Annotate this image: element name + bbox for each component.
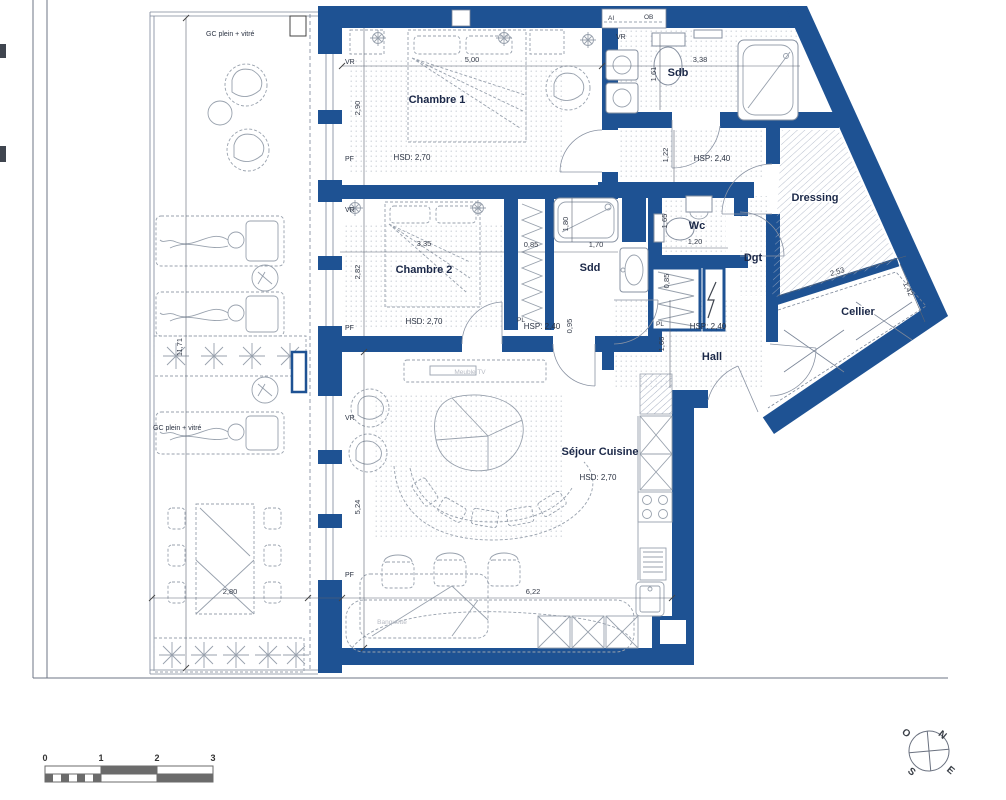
window-label-pf: PF [345,156,354,163]
floor-plan: GC plein + vitré GC plein + vitré [0,0,1006,800]
outdoor-dining-set [168,504,281,614]
dim-ch2-depth: 2,82 [353,265,362,280]
closet-label-pl2: PL [656,321,664,328]
room-label-dressing: Dressing [791,192,838,204]
ceiling-sejour: HSD: 2,70 [580,473,617,482]
floor-plan-page: GC plein + vitré GC plein + vitré [0,0,1006,800]
wall-north [318,6,806,28]
shaft-label-ai: AI [608,15,614,22]
dining-chairs [382,553,520,588]
window-chambre1 [318,54,342,180]
room-label-chambre1: Chambre 1 [409,94,466,106]
closet-pl1 [522,204,542,324]
guardrail-note: GC plein + vitré [206,31,255,38]
dim-pl1-width: 0,85 [524,240,539,249]
dim-hall-width: 1,66 [657,337,666,352]
dim-corridor-width: 1,22 [661,148,670,163]
ceiling-chambre2: HSD: 2,70 [406,317,443,326]
side-table [252,377,278,403]
balcony-column [290,16,306,36]
side-table [252,265,278,291]
dim-sdd-door: 0,95 [565,319,574,334]
electrical-panel [704,268,724,330]
sun-lounger [156,292,284,336]
ceiling-sdd-zone: HSP: 2,40 [524,322,561,331]
hand-basin [686,196,712,212]
window-label-pf: PF [345,325,354,332]
room-label-hall: Hall [702,351,722,363]
balcony-chairs [208,64,269,171]
floor-textures [340,30,800,540]
bathtub [738,40,798,120]
window-chambre2 [318,202,342,326]
shaft-label-ob: OB [644,14,653,21]
dim-ch1-depth: 2,90 [353,101,362,116]
window-label-vr: VR [345,59,355,66]
dim-sdb-depth: 1,61 [649,67,658,82]
closet-label-pl1: PL [517,317,525,324]
tall-unit [640,416,672,454]
base-unit [538,616,570,648]
sun-lounger [156,216,284,266]
wall-ch2-pl [504,199,518,330]
planter [154,638,309,672]
facade-marker [0,146,6,162]
balcony-pillar [292,352,306,392]
room-label-wc: Wc [689,220,706,232]
wall-hall-south [672,390,708,408]
nightstand [350,30,384,54]
dining-table [360,574,488,638]
washbasin [606,50,638,80]
dishwasher [640,548,666,580]
window-label-vr: VR [616,34,626,41]
dim-wc-depth: 1,65 [660,214,669,229]
scale-tick-2: 2 [154,753,159,763]
wall-sejour-north [318,336,462,352]
window-label-vr: VR [345,207,355,214]
ceiling-light-icon [580,32,596,48]
nightstand [530,30,564,54]
wall-sejour-north [502,336,553,352]
dim-balcony-width: 2,80 [223,587,238,596]
ceiling-light-icon [496,30,512,46]
wall-wc-east [734,196,748,216]
dim-shower-width: 1,70 [589,240,604,249]
scale-tick-3: 3 [210,753,215,763]
washbasin [620,248,648,292]
compass-west: O [899,727,912,741]
door-chambre1 [560,130,602,172]
banquette-label: Banquette [377,619,407,626]
dim-sejour-width: 6,22 [526,587,541,596]
dim-shower-depth: 1,80 [561,217,570,232]
wall-corridor-south [598,182,754,198]
tall-unit [640,454,672,490]
base-unit [572,616,604,648]
wall-sdb-south [602,112,672,128]
wall-southeast-angled [763,299,948,434]
wall-wc-south [648,255,748,268]
compass-east: E [944,764,956,777]
wall-south [318,648,694,665]
banquette: Banquette [346,600,634,652]
scale-bar: 0 1 2 3 [42,753,215,782]
facade-marker [0,44,6,58]
dim-sdb-width: 3,38 [693,55,708,64]
window-label-vr: VR [345,415,355,422]
door-sdd [553,344,595,386]
tv-cabinet: Meuble TV [404,360,546,382]
ceiling-hall: HSP: 2,40 [690,322,727,331]
wall-ch1-ch2 [318,185,614,199]
dim-sejour-depth: 5,24 [353,500,362,515]
compass-north: N [936,729,949,742]
room-label-dgt: Dgt [744,252,763,264]
dim-ch1-width: 5,00 [465,55,480,64]
room-label-sejour: Séjour Cuisine [561,446,638,458]
room-label-sdd: Sdd [580,262,601,274]
wall-dressing-west [766,128,780,164]
dim-ch2-width: 3,35 [417,239,432,248]
dim-balcony-length: 11,71 [175,338,184,356]
worktop [640,374,672,414]
tv-cabinet-label: Meuble TV [454,369,486,376]
sun-lounger [156,412,284,454]
room-label-cellier: Cellier [841,306,875,318]
compass-rose: N E S O [883,710,971,797]
shaft-box [452,10,470,26]
sink [636,582,664,616]
ceiling-chambre1: HSD: 2,70 [394,153,431,162]
technical-shaft: AI OB [602,9,666,28]
guardrail-note: GC plein + vitré [153,425,202,432]
base-unit [606,616,638,648]
kitchen-corner-shaft [660,620,686,644]
scale-tick-1: 1 [98,753,103,763]
shelf [694,30,722,38]
dim-wc-width: 1,20 [688,237,703,246]
ceiling-corridor: HSP: 2,40 [694,154,731,163]
scale-tick-0: 0 [42,753,47,763]
washbasin [606,83,638,113]
compass-south: S [905,766,917,779]
room-label-sdb: Sdb [668,67,689,79]
wall-pl-sdd [545,199,554,330]
window-label-pf: PF [345,572,354,579]
cooktop [638,492,672,522]
window-sejour [318,396,342,580]
wall-hall-pier [602,336,614,370]
wall-sdd-duct [622,196,646,242]
dim-pl2-width: 0,85 [662,274,671,289]
room-label-chambre2: Chambre 2 [396,264,453,276]
